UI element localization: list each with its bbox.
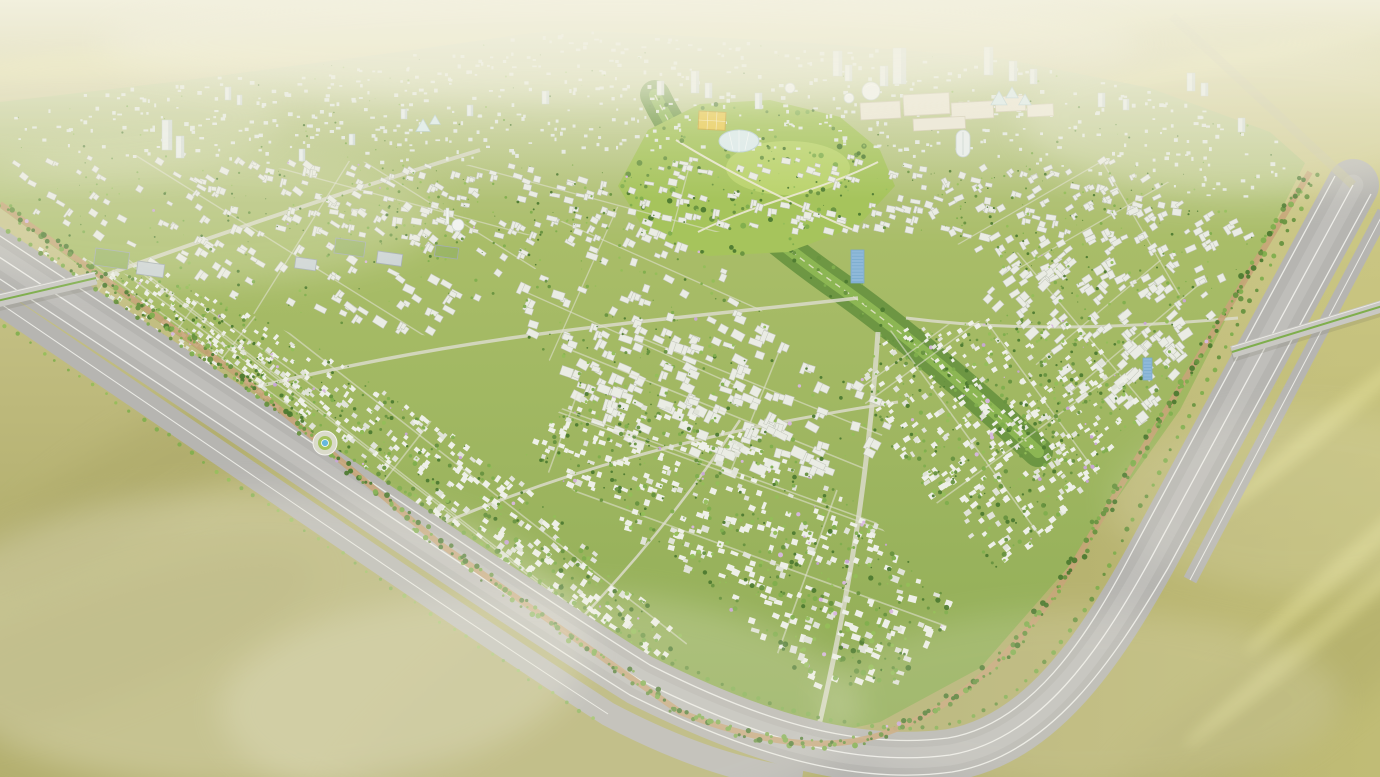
render-canvas (0, 0, 1380, 777)
entry-fountain-roundabout (313, 431, 337, 455)
city-aerial-render (0, 0, 1380, 777)
